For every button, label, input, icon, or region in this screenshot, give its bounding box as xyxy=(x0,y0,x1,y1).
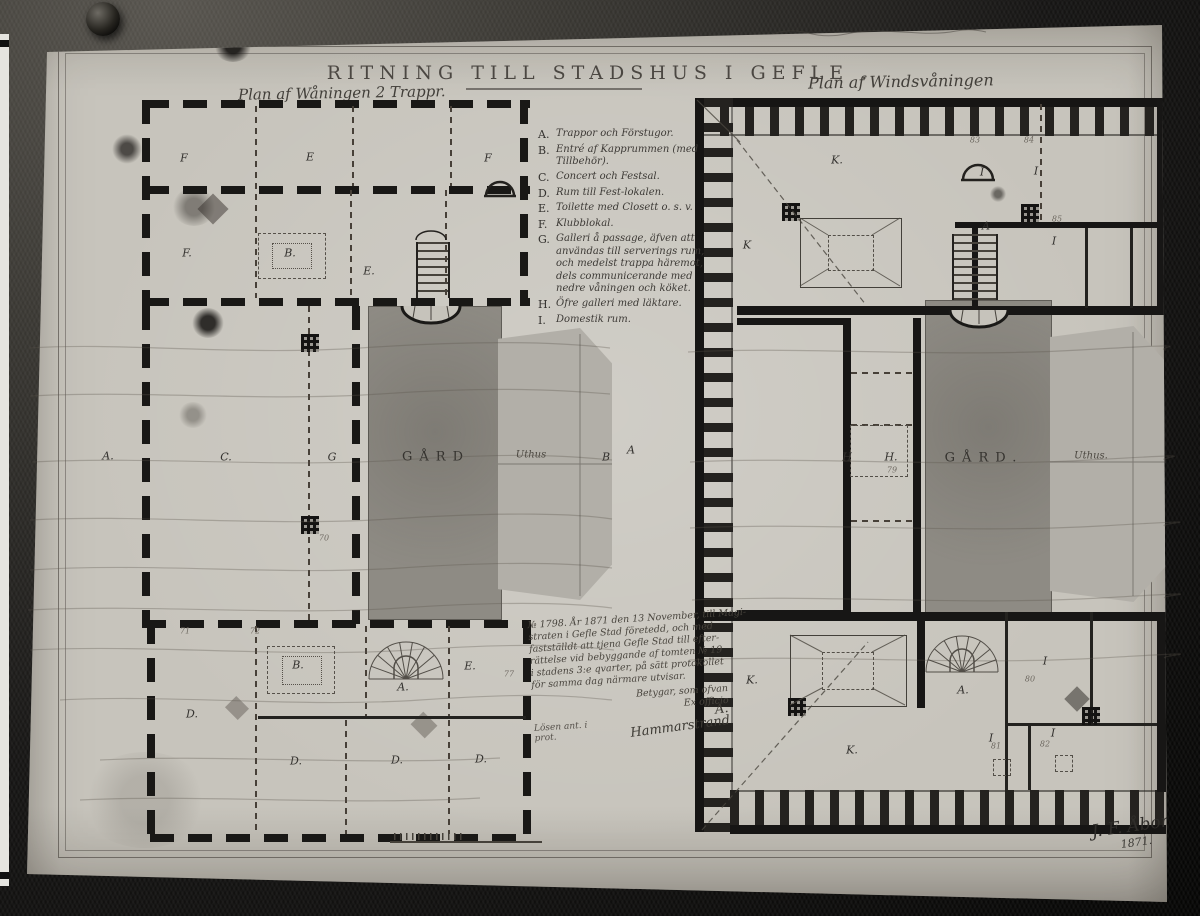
room-number: 85 xyxy=(1052,215,1062,224)
room-letter: K. xyxy=(846,744,858,757)
decor-skl-i xyxy=(1055,755,1073,772)
decor-skl-i xyxy=(828,235,874,271)
room-number: 82 xyxy=(1040,740,1050,749)
room-letter: E. xyxy=(464,660,476,673)
push-pin xyxy=(86,2,120,36)
legend-item: A.Trappor och Förstugor. xyxy=(538,128,716,141)
title-underline xyxy=(466,88,642,90)
decor-wd-v xyxy=(142,100,150,306)
room-letter: K. xyxy=(831,154,843,167)
decor-pd-v xyxy=(350,190,352,298)
legend: A.Trappor och Förstugor.B.Entré af Kappr… xyxy=(538,128,716,329)
legend-key: E. xyxy=(538,202,556,215)
room-letter: I xyxy=(980,166,984,179)
drawing-sheet: RITNING TILL STADSHUS I GEFLE . Plan af … xyxy=(0,0,1200,916)
decor-note-close-r: Betygar, som ofvan Ex officio A. Hammars… xyxy=(610,683,731,739)
page-title: RITNING TILL STADSHUS I GEFLE . xyxy=(0,62,1200,84)
decor-waffle xyxy=(788,698,806,716)
legend-key: A. xyxy=(538,128,556,141)
legend-item: H.Öfre galleri med läktare. xyxy=(538,298,716,311)
legend-key: B. xyxy=(538,144,556,169)
room-number: 70 xyxy=(319,534,329,543)
room-number: 83 xyxy=(970,136,980,145)
legend-text: Öfre galleri med läktare. xyxy=(556,298,682,311)
decor-wd-v xyxy=(352,306,360,624)
legend-key: I. xyxy=(538,314,556,327)
right-plan-title: Plan af Windsvåningen xyxy=(808,70,994,92)
decor-wsolid xyxy=(737,306,1165,315)
room-letter: H xyxy=(842,451,852,464)
archival-photograph: RITNING TILL STADSHUS I GEFLE . Plan af … xyxy=(0,0,1200,916)
room-letter: F xyxy=(180,152,188,165)
decor-wd-h xyxy=(142,620,530,628)
legend-item: I.Domestik rum. xyxy=(538,314,716,327)
room-letter: B xyxy=(602,451,610,464)
legend-text: Rum till Fest-lokalen. xyxy=(556,187,664,200)
scale-ticks xyxy=(394,833,466,840)
decor-pd-v xyxy=(1040,104,1042,224)
decor-pd-v xyxy=(255,626,257,834)
decor-waffle xyxy=(301,516,319,534)
room-letter: F. xyxy=(182,247,191,260)
decor-pd-v xyxy=(255,106,257,298)
decor-wd-v xyxy=(142,306,150,624)
decor-pd-v xyxy=(448,720,450,834)
attestation-note: № 1798. År 1871 den 13 November, till Ma… xyxy=(527,608,730,744)
decor-wsolid xyxy=(917,612,925,708)
decor-pl-v xyxy=(1028,723,1031,790)
legend-item: C.Concert och Festsal. xyxy=(538,171,716,184)
room-number: 80 xyxy=(1025,675,1035,684)
decor-wd-h xyxy=(145,100,530,108)
room-letter: B. xyxy=(292,659,304,672)
room-letter: K xyxy=(743,239,751,252)
left-uthus-roof xyxy=(498,328,612,600)
legend-key: F. xyxy=(538,218,556,231)
legend-item: E.Toilette med Closett o. s. v. xyxy=(538,202,716,215)
room-letter: F xyxy=(484,152,492,165)
room-letter: D. xyxy=(475,753,487,766)
right-uthus-label: Uthus. xyxy=(1074,451,1108,462)
legend-text: Klubblokal. xyxy=(556,218,614,231)
decor-pd-v xyxy=(308,306,310,624)
room-letter: A. xyxy=(102,450,113,463)
decor-wsolid xyxy=(737,318,843,325)
room-number: 79 xyxy=(887,466,897,475)
room-letter: D. xyxy=(290,755,302,768)
legend-text: Concert och Festsal. xyxy=(556,171,660,184)
film-notch xyxy=(0,40,9,47)
room-letter: A xyxy=(982,220,990,233)
decor-stair-v xyxy=(416,242,450,298)
room-letter: A. xyxy=(397,681,408,694)
decor-wsolid xyxy=(1157,612,1166,792)
room-number: 72 xyxy=(250,627,260,636)
legend-text: Entré af Kapprummen (med Tillbehör). xyxy=(556,144,716,169)
decor-pd-v xyxy=(345,720,347,834)
room-number: 84 xyxy=(1024,136,1034,145)
room-number: 77 xyxy=(504,670,514,679)
left-court-label: GÅRD xyxy=(402,450,470,465)
room-letter: I xyxy=(1043,655,1047,668)
decor-wsolid xyxy=(700,612,1165,621)
legend-text: Domestik rum. xyxy=(556,314,631,327)
room-letter: A xyxy=(627,444,635,457)
room-letter: H. xyxy=(884,451,897,464)
legend-key: D. xyxy=(538,187,556,200)
legend-text: Galleri å passage, äfven att användas ti… xyxy=(556,233,716,296)
decor-pl-h xyxy=(258,716,526,719)
room-number: 81 xyxy=(991,742,1001,751)
room-letter: I xyxy=(1052,235,1056,248)
room-number: 71 xyxy=(180,627,190,636)
right-uthus-roof xyxy=(1050,326,1166,602)
decor-skl-i xyxy=(850,425,908,477)
decor-wd-v xyxy=(520,100,528,306)
decor-wd-h xyxy=(145,186,530,194)
decor-waffle xyxy=(1021,204,1039,222)
room-letter: E xyxy=(306,151,314,164)
decor-wsolid xyxy=(913,318,921,618)
room-letter: K. xyxy=(746,674,758,687)
decor-waffle xyxy=(782,203,800,221)
decor-pd-v xyxy=(352,106,354,186)
left-uthus-label: Uthus xyxy=(516,450,546,461)
decor-skl-i xyxy=(822,652,874,690)
decor-pd-v xyxy=(448,626,450,716)
legend-key: H. xyxy=(538,298,556,311)
room-letter: I xyxy=(1034,165,1038,178)
legend-text: Toilette med Closett o. s. v. xyxy=(556,202,693,215)
decor-comb-h xyxy=(695,98,1165,136)
decor-waffle xyxy=(1082,707,1100,725)
room-letter: A. xyxy=(957,684,968,697)
decor-wd-v xyxy=(147,620,155,838)
room-letter: G xyxy=(328,451,337,464)
decor-pd-h xyxy=(851,372,913,374)
room-letter: E. xyxy=(363,265,375,278)
room-letter: D. xyxy=(186,708,198,721)
legend-item: G.Galleri å passage, äfven att användas … xyxy=(538,233,716,296)
decor-pd-v xyxy=(365,626,367,716)
room-letter: B. xyxy=(284,247,296,260)
room-letter: D. xyxy=(391,754,403,767)
scale-bar xyxy=(390,832,542,843)
decor-stair-v xyxy=(952,234,998,300)
legend-item: D.Rum till Fest-lokalen. xyxy=(538,187,716,200)
decor-pl-v xyxy=(1130,228,1133,308)
film-edge-strip xyxy=(0,34,9,886)
legend-item: F.Klubblokal. xyxy=(538,218,716,231)
legend-key: G. xyxy=(538,233,556,296)
decor-skl-i xyxy=(993,759,1011,776)
room-letter: C. xyxy=(220,451,232,464)
film-notch xyxy=(0,872,9,879)
legend-text: Trappor och Förstugor. xyxy=(556,128,674,141)
decor-waffle xyxy=(301,334,319,352)
decor-pd-v xyxy=(450,106,452,186)
room-letter: I xyxy=(1051,727,1055,740)
right-court-label: GÅRD. xyxy=(945,451,1024,466)
legend-key: C. xyxy=(538,171,556,184)
decor-pd-h xyxy=(851,520,913,522)
decor: № 1798. År 1871 den 13 November, till Ma… xyxy=(527,608,727,692)
decor-wd-h xyxy=(145,298,530,306)
decor-pl-v xyxy=(1085,228,1088,308)
legend-item: B.Entré af Kapprummen (med Tillbehör). xyxy=(538,144,716,169)
